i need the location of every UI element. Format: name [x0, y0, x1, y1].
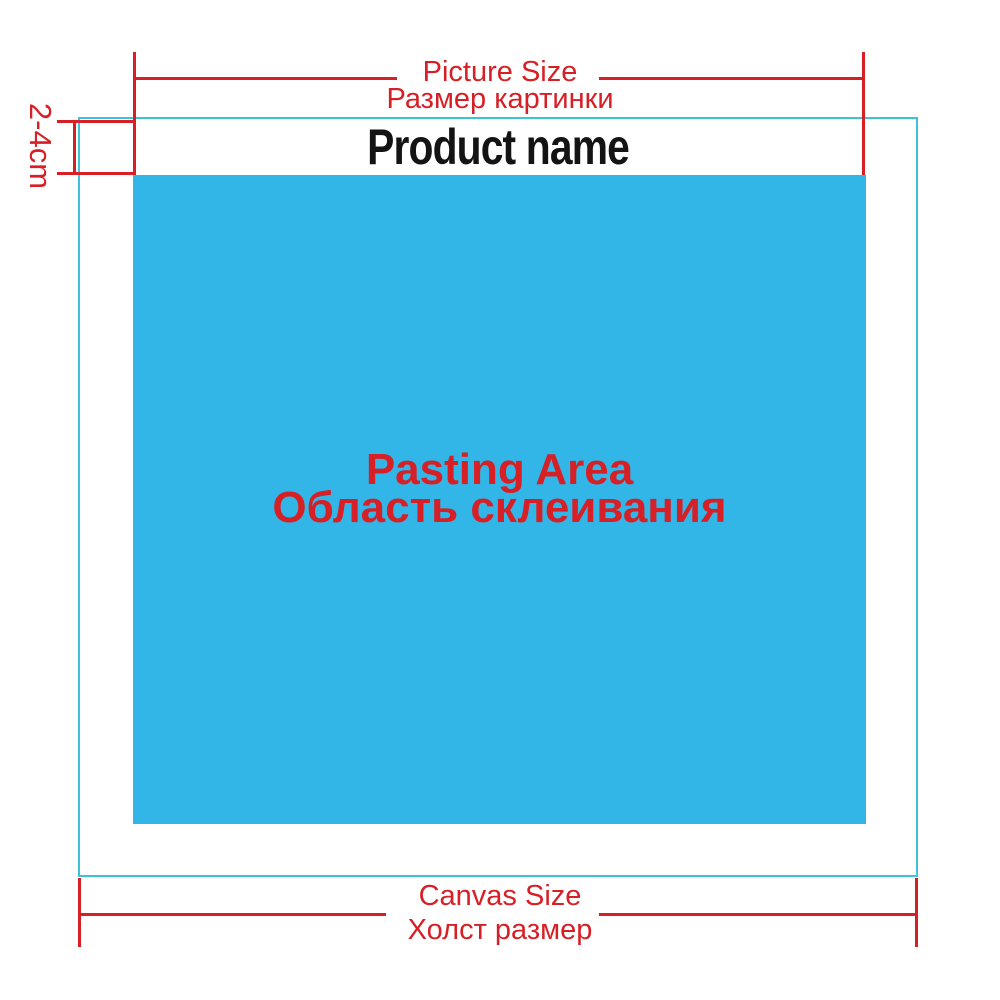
- size-diagram: Pasting Area Область склеивания Product …: [0, 0, 1000, 1000]
- margin-tick-bottom: [57, 172, 135, 175]
- product-name-text: Product name: [368, 123, 630, 173]
- product-name: Product name: [0, 124, 997, 172]
- margin-tick-top: [57, 120, 135, 123]
- canvas-size-label-ru: Холст размер: [0, 916, 1000, 945]
- pasting-area: Pasting Area Область склеивания: [133, 175, 866, 824]
- canvas-size-label-en: Canvas Size: [0, 882, 1000, 911]
- margin-connector-line: [73, 120, 76, 175]
- pasting-area-label-ru: Область склеивания: [272, 478, 726, 538]
- margin-label: 2-4cm: [22, 103, 58, 189]
- picture-size-label-ru: Размер картинки: [0, 85, 1000, 114]
